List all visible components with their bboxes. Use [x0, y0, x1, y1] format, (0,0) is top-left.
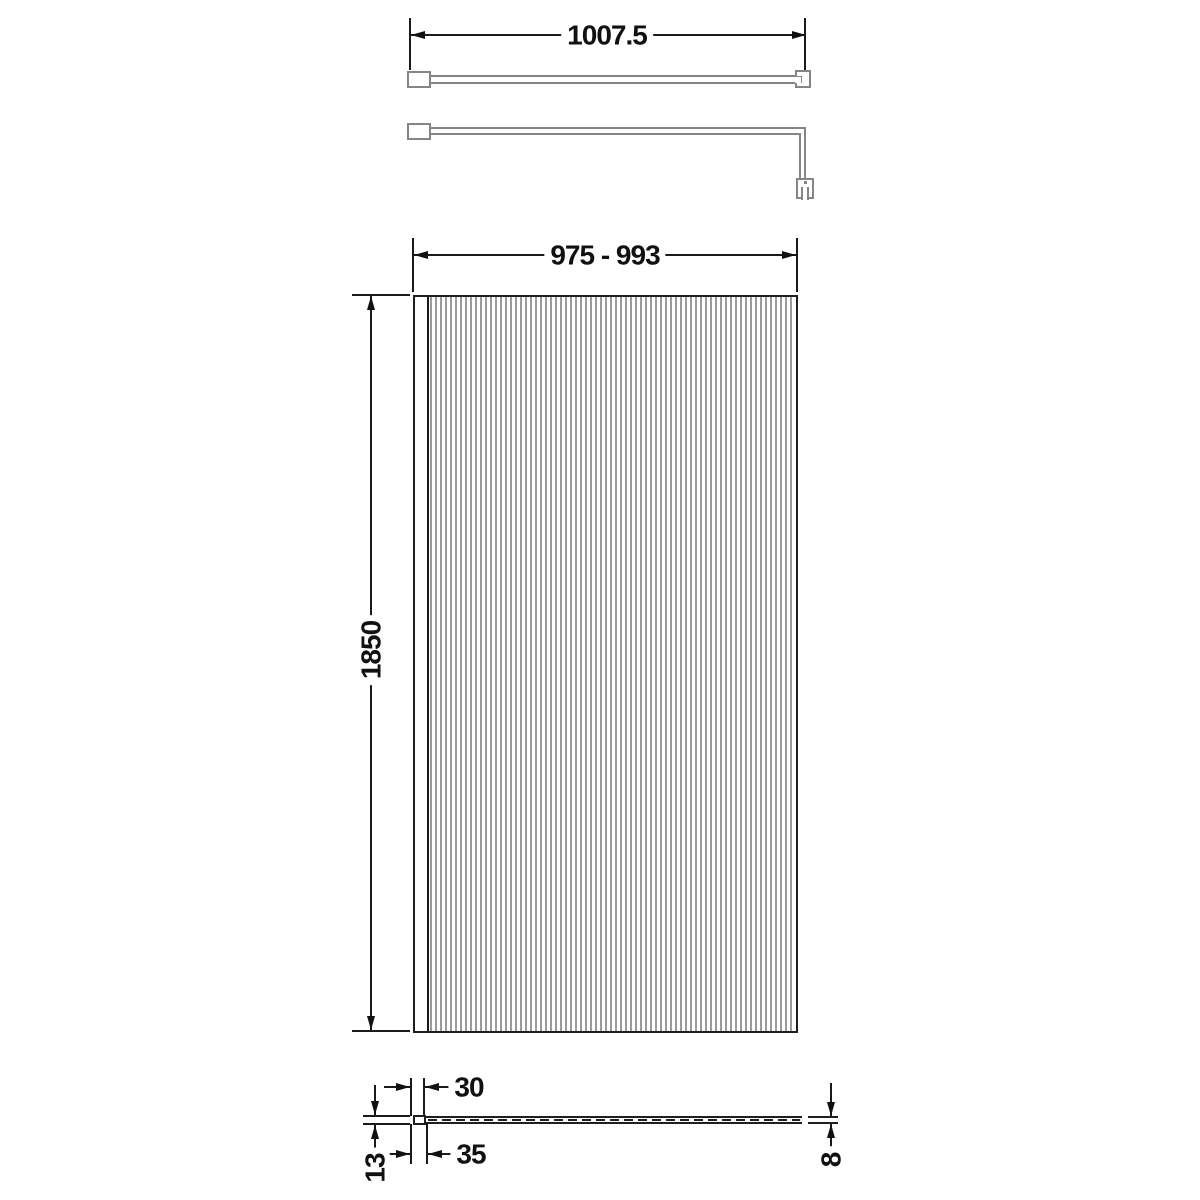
extension-line-left [412, 238, 414, 292]
extension-tick-top [352, 294, 410, 296]
extension-line-left [410, 1124, 412, 1164]
arrowhead-left-icon [414, 251, 428, 259]
arrowhead-left-icon [428, 1150, 442, 1158]
support-bar [431, 75, 795, 84]
wall-bracket [407, 123, 431, 140]
arrowhead-right-icon [792, 31, 806, 39]
arrowhead-left-icon [425, 1083, 439, 1091]
arrowhead-up-icon [367, 296, 375, 310]
fluted-glass-texture [430, 297, 793, 1031]
arrowhead-right-icon [396, 1083, 410, 1091]
flute-dash-pattern [428, 1119, 800, 1121]
extension-line-left [409, 18, 411, 70]
profile-depth-label: 13 [360, 1147, 389, 1188]
glass-section-plain [808, 1116, 838, 1124]
elbow-outer-line [804, 127, 806, 178]
clamp-slot [801, 187, 809, 200]
elbow-inner-line [799, 133, 801, 178]
bar-bottom-line [431, 133, 799, 135]
arrowhead-left-icon [411, 31, 425, 39]
extension-line-top [363, 1115, 410, 1117]
panel-height-label: 1850 [356, 615, 385, 685]
extension-tick-bottom [352, 1030, 410, 1032]
clamp-screw-dot [804, 181, 807, 184]
wall-profile-section [413, 1115, 426, 1125]
glass-thickness-label: 8 [816, 1147, 845, 1174]
arrowhead-down-icon [367, 1016, 375, 1030]
arrowhead-right-icon [782, 251, 796, 259]
technical-drawing: 1007.5 975 - 993 [0, 0, 1200, 1200]
extension-line-right [796, 238, 798, 292]
glass-section-dashed [426, 1116, 802, 1124]
clamp-notch [795, 76, 802, 83]
extension-line-right [804, 18, 806, 70]
extension-line-left [410, 1078, 412, 1116]
wall-profile-line [427, 297, 429, 1031]
profile-width-bottom-label: 35 [450, 1139, 491, 1168]
arrowhead-up-icon [827, 1124, 835, 1138]
arrowhead-down-icon [371, 1101, 379, 1115]
arrowhead-up-icon [371, 1125, 379, 1139]
wall-bracket [407, 71, 431, 88]
profile-width-top-label: 30 [448, 1072, 489, 1101]
arrowhead-right-icon [396, 1150, 410, 1158]
panel-width-label: 975 - 993 [544, 240, 665, 269]
bar-top-line [431, 127, 806, 129]
extension-line-right [426, 1124, 428, 1164]
arm-length-label: 1007.5 [561, 20, 653, 49]
arrowhead-down-icon [827, 1102, 835, 1116]
